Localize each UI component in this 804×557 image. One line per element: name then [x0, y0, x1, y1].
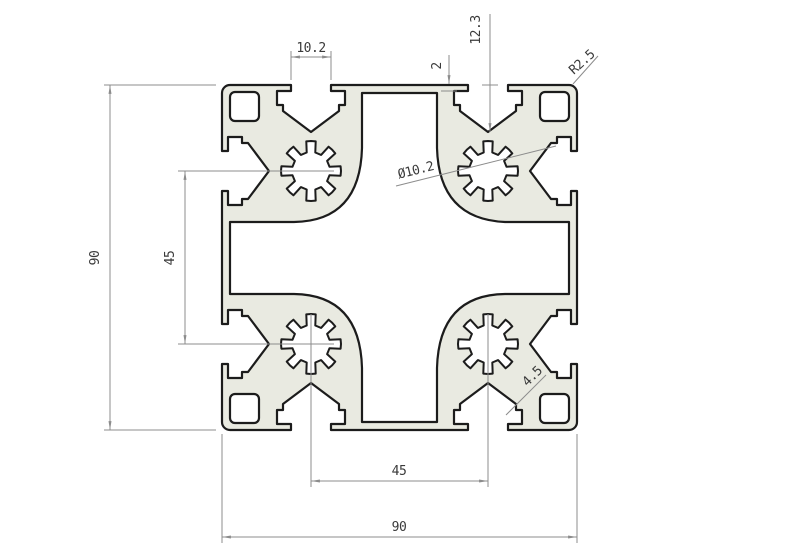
corner-hole [230, 92, 259, 121]
dim-width-label: 90 [392, 520, 407, 535]
core-hole [458, 141, 518, 201]
corner-hole [230, 394, 259, 423]
dim-slot-depth-label: 12.3 [469, 15, 484, 44]
profile-geometry [104, 14, 598, 543]
dimension-arrow [109, 421, 112, 430]
dim-height-label: 90 [88, 251, 103, 266]
dim-slot-pitch-horizontal-label: 45 [392, 464, 407, 479]
dimension-arrow [311, 480, 320, 483]
dim-core-hole-label: Ø10.2 [396, 159, 435, 182]
dim-slot-opening-label: 10.2 [296, 41, 325, 56]
dim-lip-thickness-label: 2 [430, 62, 445, 69]
technical-drawing: 10.2 2 12.3 R2.5 Ø10.2 90 45 45 90 4.5 [0, 0, 804, 557]
dimension-arrow [448, 75, 451, 84]
dim-slot-pitch-vertical-label: 45 [163, 251, 178, 266]
corner-hole [540, 92, 569, 121]
dimension-arrow [479, 480, 488, 483]
dimension-arrow [109, 85, 112, 94]
dimension-arrow [184, 171, 187, 180]
drawing-canvas: 10.2 2 12.3 R2.5 Ø10.2 90 45 45 90 4.5 [0, 0, 804, 557]
corner-hole [540, 394, 569, 423]
dimension-arrow [222, 536, 231, 539]
dimension-arrow [568, 536, 577, 539]
dimension-arrow [184, 335, 187, 344]
